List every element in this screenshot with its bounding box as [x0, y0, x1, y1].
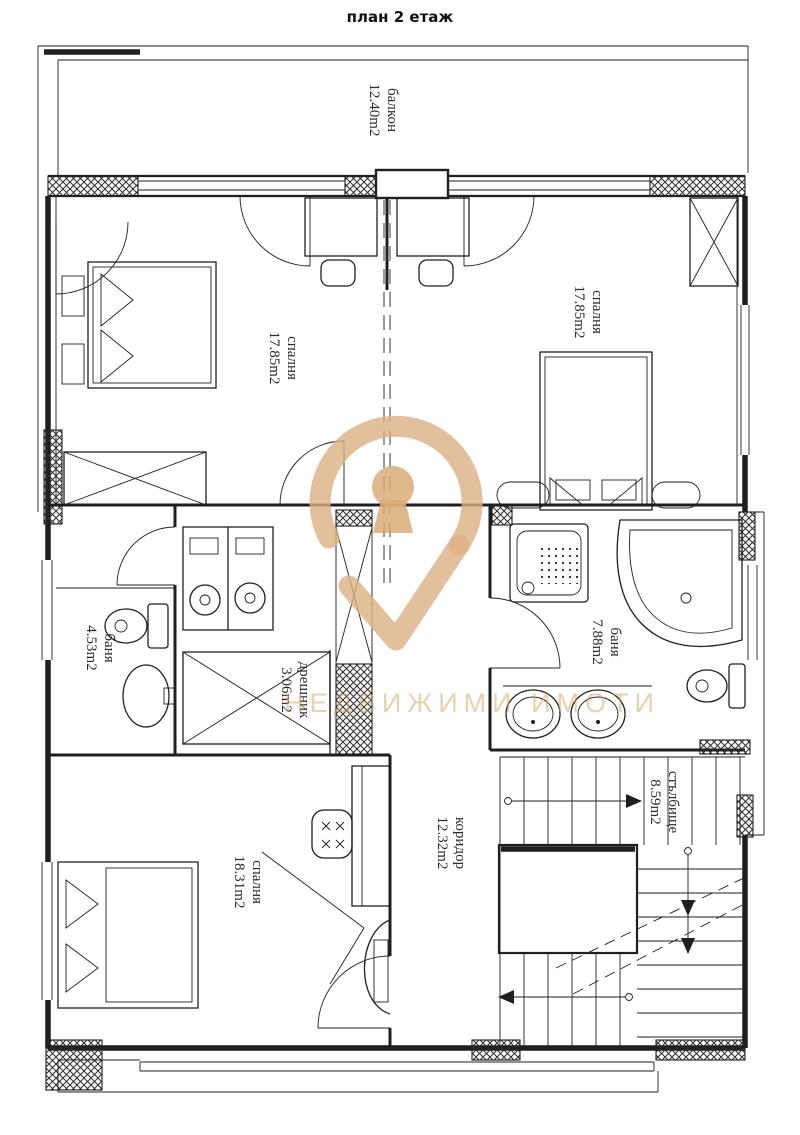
- svg-text:спалня: спалня: [284, 336, 300, 380]
- svg-text:12.40m2: 12.40m2: [366, 84, 382, 137]
- bedroom-bottom-furniture: [58, 766, 390, 1014]
- svg-text:8.59m2: 8.59m2: [647, 779, 663, 824]
- svg-text:спалня: спалня: [249, 860, 265, 904]
- stairs-icon: [498, 757, 748, 1048]
- balcony-door-threshold: [376, 170, 448, 198]
- svg-text:баня: баня: [607, 627, 623, 656]
- room-label-corridor: коридор 12.32m2: [434, 817, 468, 870]
- room-label-staircase: стълбище 8.59m2: [647, 771, 681, 834]
- svg-text:17.85m2: 17.85m2: [266, 332, 282, 385]
- room-label-bedroom-left: спалня 17.85m2: [266, 332, 300, 385]
- svg-text:спалня: спалня: [589, 290, 605, 334]
- bed-icon: [497, 352, 700, 510]
- svg-text:коридор: коридор: [452, 817, 468, 869]
- bed-icon: [62, 262, 216, 388]
- desk-icon: [397, 198, 469, 286]
- shaft: [336, 510, 372, 755]
- bathtub-icon: [617, 520, 742, 646]
- shower-icon: [510, 524, 588, 602]
- label-pointer-line: [262, 852, 364, 984]
- bed-icon: [58, 862, 198, 1008]
- toilet-icon: [687, 664, 745, 708]
- desk-icon: [312, 766, 390, 906]
- stairs-up-arrow: [505, 794, 643, 808]
- tv-console-icon: [364, 920, 390, 1014]
- svg-text:7.88m2: 7.88m2: [589, 619, 605, 664]
- svg-text:балкон: балкон: [384, 88, 400, 132]
- floor-plan: план 2 етаж: [0, 0, 800, 1135]
- stairs-down-arrow: [556, 848, 748, 995]
- watermark-text: НЕДВИЖИМИ ИМОТИ: [284, 688, 660, 718]
- watermark-logo: [320, 426, 472, 640]
- top-wall: [48, 170, 745, 198]
- room-label-bath-right: баня 7.88m2: [589, 619, 623, 664]
- svg-text:18.31m2: 18.31m2: [231, 856, 247, 909]
- sink-icon: [123, 665, 175, 727]
- svg-text:12.32m2: 12.32m2: [434, 817, 450, 870]
- door-swings: [56, 196, 560, 1028]
- wardrobe-icon: [64, 452, 206, 505]
- closet-zone: [183, 510, 372, 755]
- desk-icon: [305, 198, 377, 286]
- room-label-balcony: балкон 12.40m2: [366, 84, 400, 137]
- room-label-bath-left: баня 4.53m2: [83, 625, 117, 670]
- svg-text:4.53m2: 4.53m2: [83, 625, 99, 670]
- page-title: план 2 етаж: [347, 8, 454, 26]
- room-label-bedroom-bottom: спалня 18.31m2: [231, 856, 265, 909]
- stairs-left-arrow: [498, 990, 633, 1004]
- bedroom-right-furniture: [397, 198, 738, 510]
- svg-text:баня: баня: [101, 633, 117, 662]
- wardrobe-icon: [690, 198, 738, 286]
- washer-icon: [183, 527, 273, 630]
- svg-text:17.85m2: 17.85m2: [571, 286, 587, 339]
- svg-text:стълбище: стълбище: [665, 771, 681, 834]
- room-label-bedroom-right: спалня 17.85m2: [571, 286, 605, 339]
